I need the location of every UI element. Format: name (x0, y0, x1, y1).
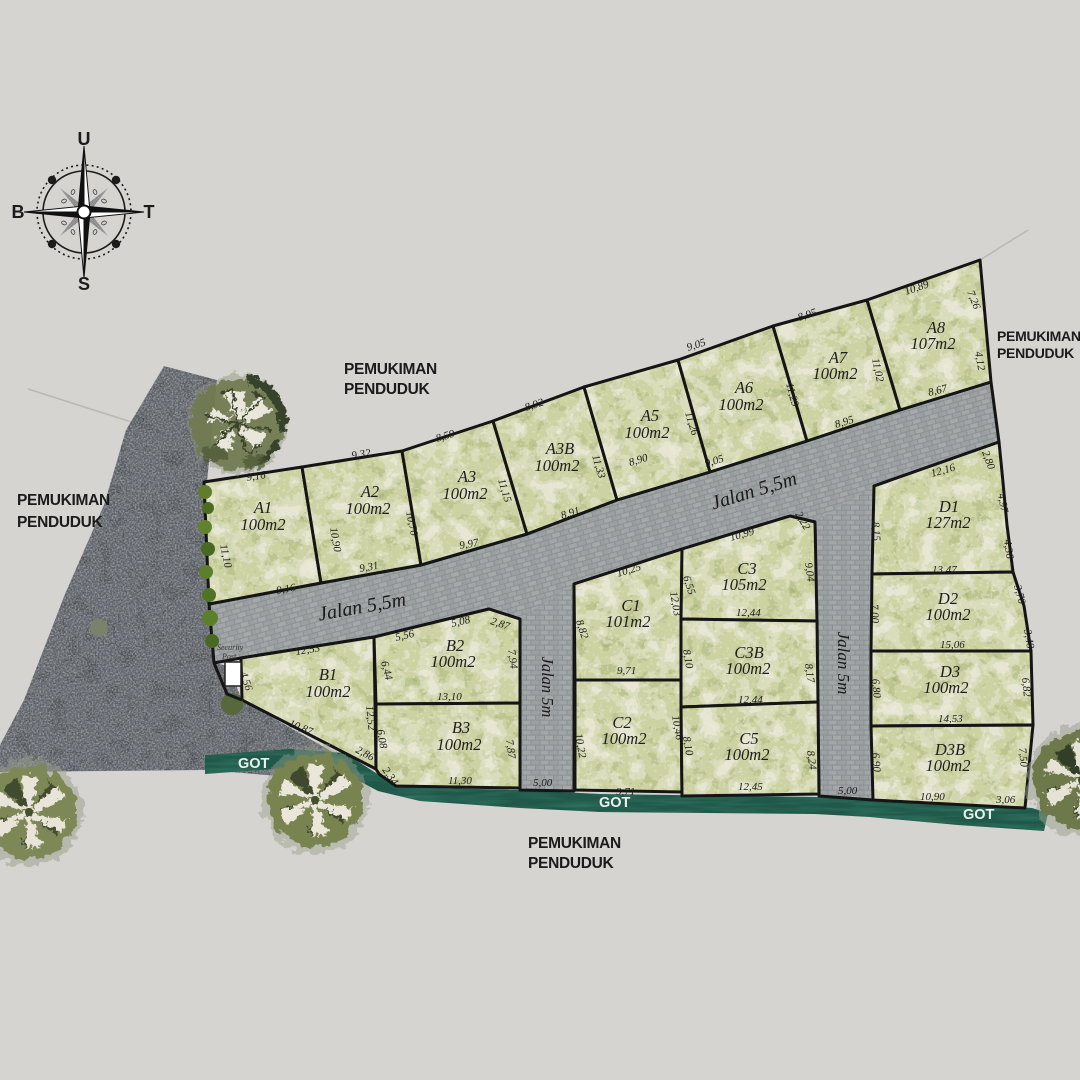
svg-text:PENDUDUK: PENDUDUK (17, 514, 104, 531)
svg-text:GOT: GOT (963, 807, 995, 823)
svg-text:Security: Security (217, 643, 244, 652)
svg-text:PEMUKIMAN: PEMUKIMAN (997, 328, 1080, 344)
svg-text:105m2: 105m2 (722, 575, 767, 594)
svg-text:5,00: 5,00 (533, 777, 553, 789)
svg-text:15,06: 15,06 (940, 639, 965, 651)
svg-text:14,53: 14,53 (938, 713, 963, 725)
svg-text:PEMUKIMAN: PEMUKIMAN (17, 492, 110, 509)
svg-text:100m2: 100m2 (813, 364, 858, 383)
svg-text:100m2: 100m2 (726, 659, 771, 678)
svg-text:PEMUKIMAN: PEMUKIMAN (528, 835, 621, 852)
svg-text:100m2: 100m2 (535, 456, 580, 475)
svg-text:101m2: 101m2 (606, 612, 651, 631)
svg-text:100m2: 100m2 (306, 682, 351, 701)
svg-text:3,06: 3,06 (995, 794, 1016, 806)
svg-text:10,90: 10,90 (920, 791, 945, 803)
svg-text:100m2: 100m2 (924, 678, 969, 697)
svg-text:S: S (78, 274, 90, 294)
svg-text:100m2: 100m2 (926, 756, 971, 775)
svg-text:9,71: 9,71 (616, 786, 635, 798)
svg-text:6,90: 6,90 (869, 752, 883, 773)
svg-text:6,82: 6,82 (1019, 677, 1033, 698)
svg-text:100m2: 100m2 (719, 395, 764, 414)
svg-text:PENDUDUK: PENDUDUK (528, 855, 615, 872)
svg-text:Jalan 5m: Jalan 5m (538, 657, 557, 718)
svg-text:100m2: 100m2 (241, 515, 286, 534)
svg-text:127m2: 127m2 (926, 513, 971, 532)
svg-text:100m2: 100m2 (725, 745, 770, 764)
svg-text:107m2: 107m2 (911, 334, 956, 353)
svg-text:9,71: 9,71 (617, 665, 636, 677)
svg-text:5,00: 5,00 (838, 785, 858, 797)
svg-text:100m2: 100m2 (602, 729, 647, 748)
svg-text:100m2: 100m2 (431, 652, 476, 671)
svg-text:8,15: 8,15 (869, 521, 882, 542)
svg-text:100m2: 100m2 (346, 499, 391, 518)
svg-text:PENDUDUK: PENDUDUK (997, 345, 1074, 361)
svg-text:B: B (12, 202, 25, 222)
svg-text:12,44: 12,44 (738, 694, 763, 706)
svg-text:GOT: GOT (238, 756, 270, 772)
svg-text:7,50: 7,50 (1016, 747, 1030, 768)
svg-text:U: U (78, 129, 91, 149)
svg-text:100m2: 100m2 (437, 735, 482, 754)
svg-text:11,30: 11,30 (448, 775, 472, 787)
svg-text:7,00: 7,00 (868, 604, 881, 624)
svg-text:Post: Post (221, 652, 237, 661)
svg-text:13,47: 13,47 (932, 564, 957, 576)
svg-text:PENDUDUK: PENDUDUK (344, 381, 431, 398)
svg-text:PEMUKIMAN: PEMUKIMAN (344, 361, 437, 378)
svg-text:Jalan 5m: Jalan 5m (834, 632, 853, 695)
svg-text:T: T (144, 202, 155, 222)
svg-text:100m2: 100m2 (926, 605, 971, 624)
svg-text:6,80: 6,80 (869, 678, 883, 699)
svg-text:12,44: 12,44 (736, 607, 761, 619)
svg-text:13,10: 13,10 (437, 691, 462, 703)
svg-text:12,45: 12,45 (738, 781, 763, 793)
svg-text:100m2: 100m2 (625, 423, 670, 442)
svg-text:100m2: 100m2 (443, 484, 488, 503)
